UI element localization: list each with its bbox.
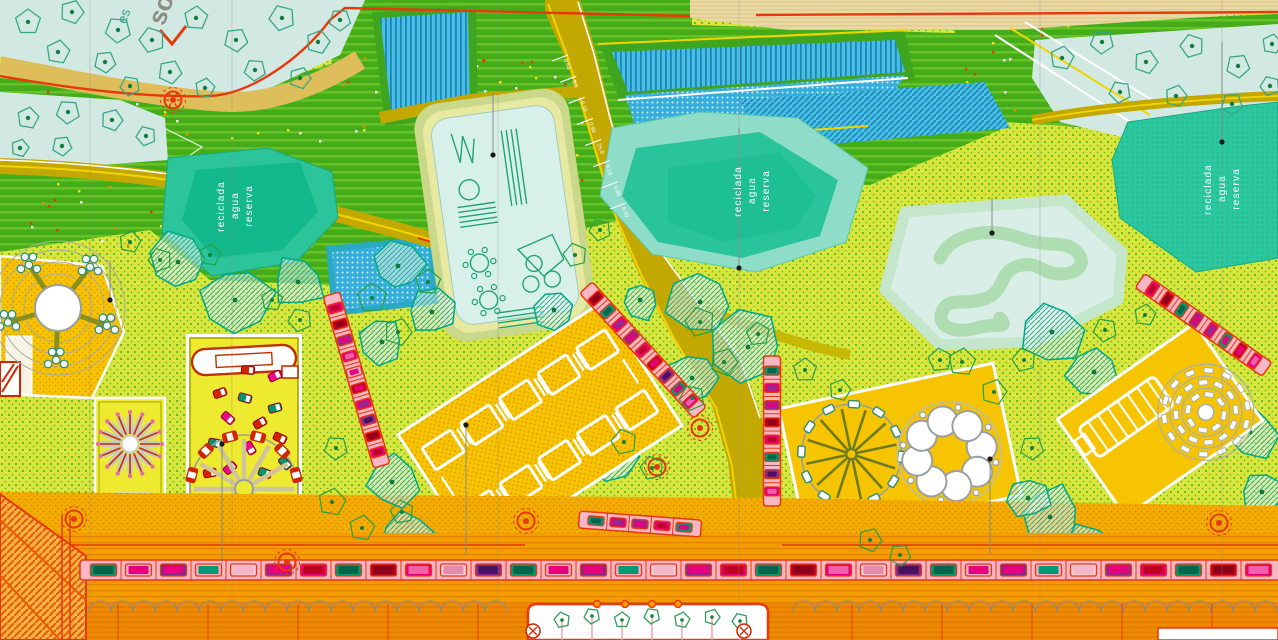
ticket-booth [282, 366, 298, 378]
masterplan-canvas: 0.539.06.100.9025.09.160.856.40 reciclad… [0, 0, 1278, 640]
fan-wheel-icon [96, 410, 164, 478]
site-plan-svg: 0.539.06.100.9025.09.160.856.40 [0, 0, 1278, 640]
red-striped-kiosk [0, 362, 20, 396]
